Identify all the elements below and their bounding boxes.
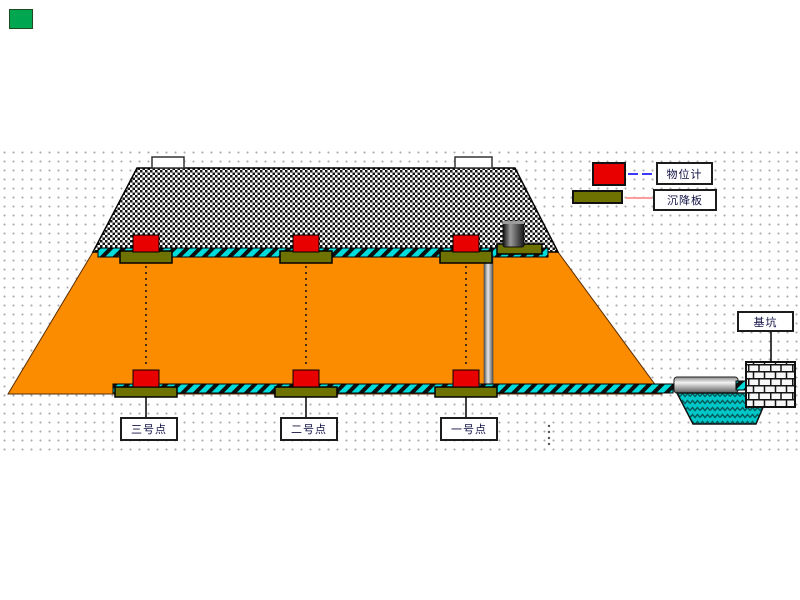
standpipe-cap-rim xyxy=(503,221,524,224)
standpipe-cap-cylinder xyxy=(503,221,524,247)
crest-marker-left xyxy=(152,157,184,168)
level-gauge-upper-3 xyxy=(133,235,159,252)
settlement-plate-upper-2 xyxy=(280,251,332,263)
level-gauge-lower-1 xyxy=(453,370,479,387)
rockfill-layer xyxy=(93,168,558,252)
legend-label-settlement-plate: 沉降板 xyxy=(653,189,717,211)
legend-level-gauge-swatch xyxy=(593,163,625,185)
point-1-label-box[interactable]: 一号点 xyxy=(440,417,498,441)
embankment-fill xyxy=(8,252,662,394)
hmi-canvas: 物位计 沉降板 基坑 三号点 二号点 一号点 xyxy=(0,0,800,600)
settlement-plate-lower-1 xyxy=(435,387,497,397)
level-gauge-upper-2 xyxy=(293,235,319,252)
settlement-plate-upper-1 xyxy=(440,251,492,263)
point-3-label-box[interactable]: 三号点 xyxy=(120,417,178,441)
drain-pipe-cylinder xyxy=(674,377,738,393)
level-gauge-upper-1 xyxy=(453,235,479,252)
level-gauge-lower-3 xyxy=(133,370,159,387)
crest-marker-right xyxy=(455,157,492,168)
settlement-plate-upper-3 xyxy=(120,251,172,263)
ellipsis-dots xyxy=(548,425,550,445)
legend-label-level-gauge: 物位计 xyxy=(656,162,713,185)
pit-label-box[interactable]: 基坑 xyxy=(737,311,794,332)
legend-settlement-plate-swatch xyxy=(573,191,622,203)
monitoring-diagram xyxy=(0,0,800,600)
level-gauge-lower-2 xyxy=(293,370,319,387)
lower-sensor-cable xyxy=(113,384,673,393)
settlement-plate-lower-3 xyxy=(115,387,177,397)
settlement-plate-lower-2 xyxy=(275,387,337,397)
point-2-label-box[interactable]: 二号点 xyxy=(280,417,338,441)
pit-brick-wall xyxy=(746,362,795,407)
standpipe-riser xyxy=(484,255,493,386)
label-leader-lines xyxy=(146,397,466,417)
